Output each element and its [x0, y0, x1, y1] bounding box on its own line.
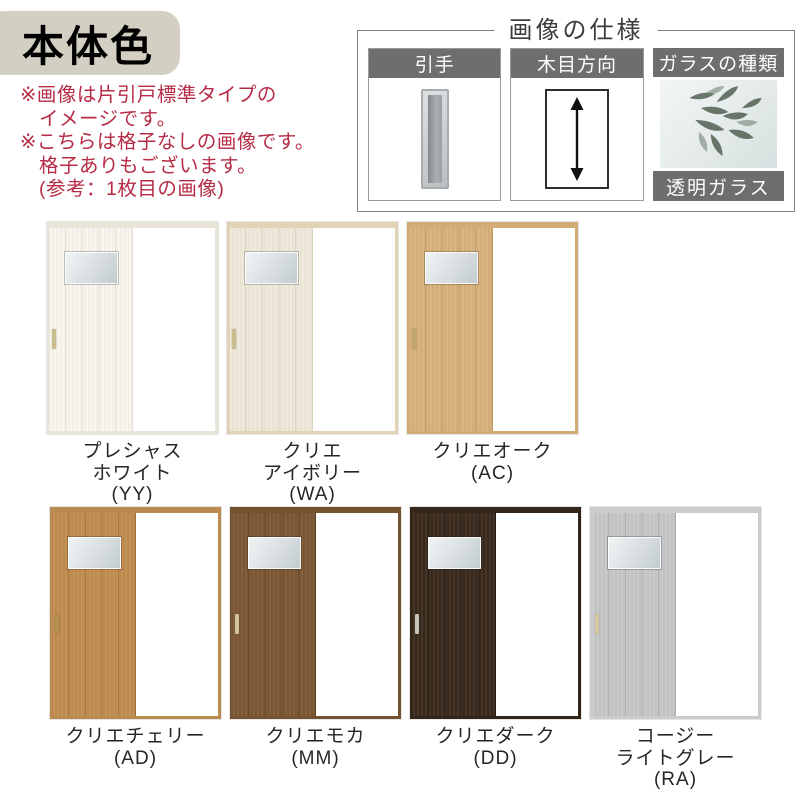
door-handle: [412, 329, 416, 349]
door-opening: [233, 513, 398, 716]
door-code: (WA): [227, 484, 398, 506]
plant-leaves-icon: [660, 80, 777, 168]
door-image: [227, 222, 398, 434]
note-line: ※こちらは格子なしの画像です。: [20, 131, 365, 155]
spec-panel-grain-direction-body: [511, 78, 642, 200]
note-line: イメージです。: [20, 108, 365, 132]
grain-direction-panel: [545, 89, 609, 189]
door-name-line: クリエ: [227, 441, 398, 463]
door-code: (AD): [50, 748, 221, 770]
door-name-line: コージー: [590, 726, 761, 748]
door-color-option: クリエモカ(MM): [230, 507, 401, 791]
door-image: [50, 507, 221, 719]
door-color-option: クリエアイボリー(WA): [227, 222, 398, 506]
spec-panel-grain-direction: 木目方向: [510, 48, 643, 201]
door-opening: [593, 513, 758, 716]
door-color-option: プレシャスホワイト(YY): [47, 222, 218, 506]
door-slab: [50, 228, 133, 431]
door-color-name: プレシャスホワイト(YY): [47, 441, 218, 506]
door-slab: [230, 228, 313, 431]
door-color-name: クリエオーク(AC): [407, 441, 578, 484]
door-glass-window: [608, 537, 661, 569]
door-glass-window: [428, 537, 481, 569]
glass-sample-image: [660, 80, 777, 168]
door-slab: [410, 228, 493, 431]
door-glass-window: [248, 537, 301, 569]
door-glass-window: [68, 537, 121, 569]
door-color-name: クリエダーク(DD): [410, 726, 581, 769]
door-color-option: クリエダーク(DD): [410, 507, 581, 791]
door-color-name: クリエモカ(MM): [230, 726, 401, 769]
door-opening: [413, 513, 578, 716]
door-code: (MM): [230, 748, 401, 770]
door-color-grid-row-2: クリエチェリー(AD) クリエモカ(MM) クリエダーク(DD): [50, 507, 761, 791]
door-handle: [52, 329, 56, 349]
note-line: ※画像は片引戸標準タイプの: [20, 84, 365, 108]
door-opening: [53, 513, 218, 716]
note-line: (参考：1枚目の画像): [20, 178, 365, 202]
door-name-line: クリエチェリー: [50, 726, 221, 748]
door-name-line: クリエモカ: [230, 726, 401, 748]
door-color-grid-row-1: プレシャスホワイト(YY) クリエアイボリー(WA) クリエオーク(AC): [47, 222, 578, 506]
door-code: (DD): [410, 748, 581, 770]
door-name-line: クリエダーク: [410, 726, 581, 748]
door-glass-window: [245, 252, 298, 284]
door-code: (AC): [407, 463, 578, 485]
door-opening: [230, 228, 395, 431]
spec-panel-grain-direction-header: 木目方向: [511, 49, 642, 78]
door-name-line: プレシャス: [47, 441, 218, 463]
door-image: [410, 507, 581, 719]
door-image: [230, 507, 401, 719]
door-code: (RA): [590, 769, 761, 791]
door-slab: [53, 513, 136, 716]
door-slab: [413, 513, 496, 716]
image-spec-box: 画像の仕様 引手 木目方向: [357, 30, 795, 212]
glass-type-footer: 透明ガラス: [653, 171, 784, 201]
vertical-double-arrow-icon: [566, 97, 588, 181]
door-handle: [232, 329, 236, 349]
door-opening: [50, 228, 215, 431]
door-name-line: アイボリー: [227, 463, 398, 485]
door-glass-window: [425, 252, 478, 284]
door-color-option: コージーライトグレー(RA): [590, 507, 761, 791]
door-name-line: ライトグレー: [590, 748, 761, 770]
door-image: [47, 222, 218, 434]
body-color-badge-label: 本体色: [22, 13, 154, 74]
spec-panel-pull-handle-body: [369, 78, 500, 200]
door-image: [590, 507, 761, 719]
door-slab: [593, 513, 676, 716]
note-line: 格子ありもございます。: [20, 155, 365, 179]
door-code: (YY): [47, 484, 218, 506]
door-slab: [233, 513, 316, 716]
recessed-pull-handle-icon: [421, 89, 449, 189]
product-color-sheet: 本体色 ※画像は片引戸標準タイプのイメージです。※こちらは格子なしの画像です。格…: [0, 0, 800, 800]
door-handle: [235, 614, 239, 634]
door-color-option: クリエチェリー(AD): [50, 507, 221, 791]
body-color-badge: 本体色: [0, 11, 180, 75]
door-image: [407, 222, 578, 434]
door-color-name: コージーライトグレー(RA): [590, 726, 761, 791]
door-color-name: クリエアイボリー(WA): [227, 441, 398, 506]
spec-panel-glass-type-body: [653, 77, 784, 171]
door-glass-window: [65, 252, 118, 284]
door-handle: [595, 614, 599, 634]
spec-panel-pull-handle: 引手: [368, 48, 501, 201]
spec-panel-glass-type-header: ガラスの種類: [653, 48, 784, 77]
door-opening: [410, 228, 575, 431]
door-name-line: ホワイト: [47, 463, 218, 485]
door-name-line: クリエオーク: [407, 441, 578, 463]
spec-panel-pull-handle-header: 引手: [369, 49, 500, 78]
spec-panel-glass-type: ガラスの種類: [653, 48, 784, 201]
image-spec-panels: 引手 木目方向: [358, 31, 794, 211]
door-handle: [55, 614, 59, 634]
door-handle: [415, 614, 419, 634]
notes: ※画像は片引戸標準タイプのイメージです。※こちらは格子なしの画像です。格子ありも…: [20, 84, 365, 202]
door-color-option: クリエオーク(AC): [407, 222, 578, 506]
door-color-name: クリエチェリー(AD): [50, 726, 221, 769]
